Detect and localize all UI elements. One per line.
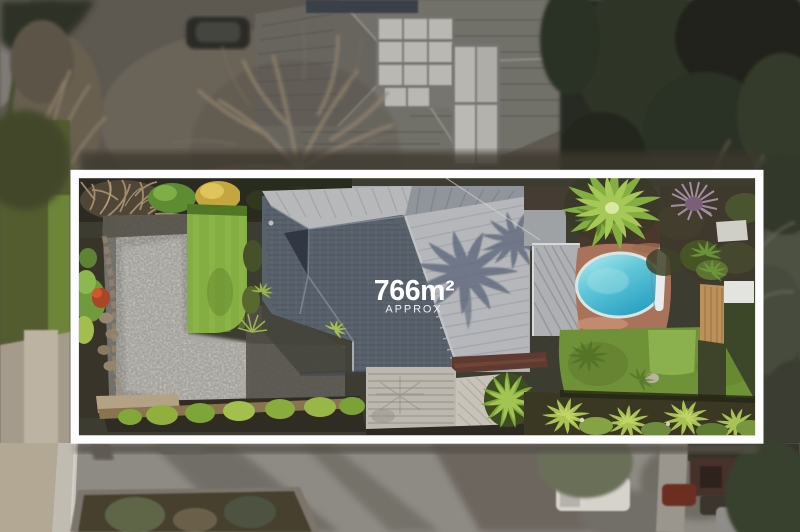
svg-text:766m²: 766m² bbox=[374, 275, 454, 307]
svg-text:APPROX: APPROX bbox=[385, 304, 442, 316]
